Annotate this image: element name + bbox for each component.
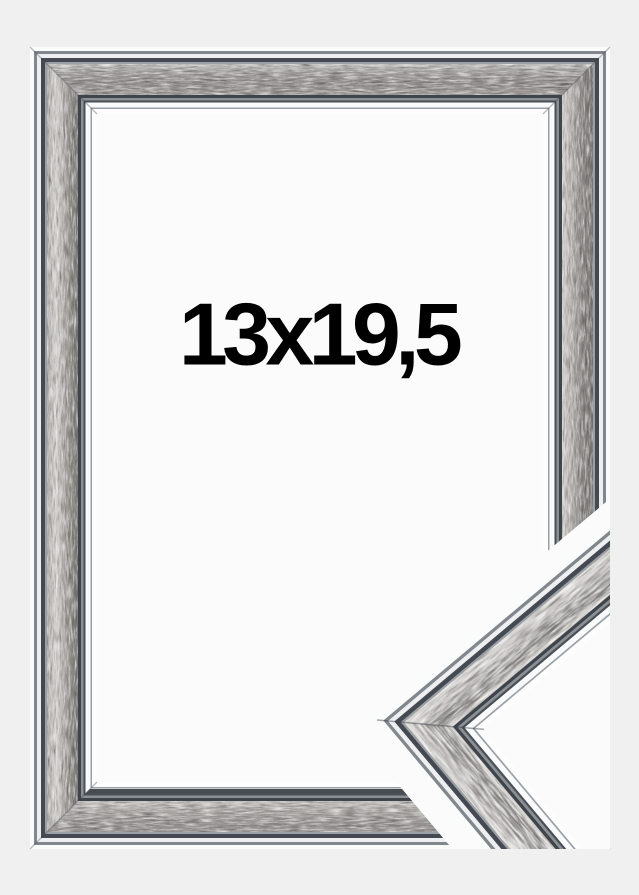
svg-text:13x19,5: 13x19,5 (179, 285, 461, 384)
